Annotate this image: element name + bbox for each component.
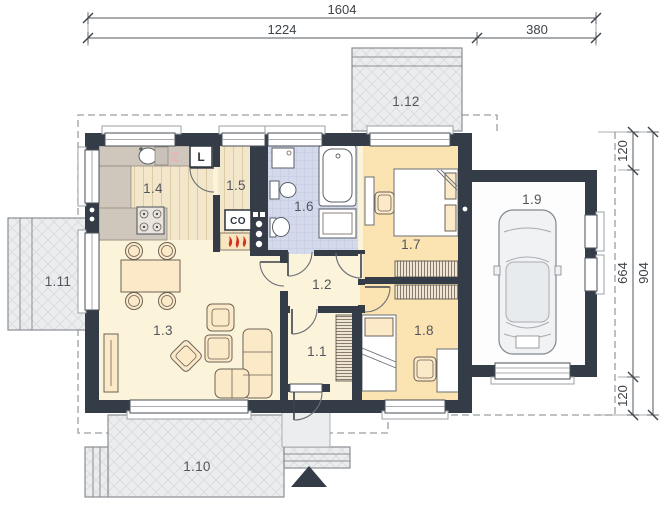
dim-overhang-bottom: 120 xyxy=(615,385,630,407)
fireplace-icon xyxy=(220,233,250,250)
room-label-1-2: 1.2 xyxy=(312,277,332,292)
single-bed xyxy=(362,315,396,391)
garage-door xyxy=(491,363,574,384)
entry-walkway xyxy=(284,447,350,468)
dim-side-depth: 664 xyxy=(615,262,630,284)
wardrobe-1-1 xyxy=(336,315,354,381)
dim-total-depth: 904 xyxy=(636,262,651,284)
fridge-box: L xyxy=(190,146,212,167)
room-label-1-10: 1.10 xyxy=(183,459,210,474)
bath-cabinet xyxy=(272,148,294,168)
vent-dot xyxy=(90,217,95,222)
toilet-icon xyxy=(270,181,296,199)
stove-icon xyxy=(137,207,164,234)
vent-dot xyxy=(90,208,95,213)
boiler-box: CO xyxy=(225,210,251,230)
double-bed xyxy=(394,169,458,236)
dim-overhang-top: 120 xyxy=(615,140,630,162)
coffee-table xyxy=(205,335,232,362)
boiler-label: CO xyxy=(230,216,246,227)
desk-1-7 xyxy=(365,177,374,225)
desk-chair-1-8 xyxy=(414,357,436,381)
room-label-1-1: 1.1 xyxy=(307,344,327,359)
wardrobe-1-7 xyxy=(395,261,463,277)
terrace-back xyxy=(352,48,462,131)
room-label-1-8: 1.8 xyxy=(414,323,434,338)
main-entrance-arrow-icon xyxy=(291,466,327,487)
dishwasher-label: Z xyxy=(171,150,179,164)
room-label-1-5: 1.5 xyxy=(226,178,246,193)
kitchen-sink-icon xyxy=(139,147,157,164)
room-label-1-12: 1.12 xyxy=(392,94,419,109)
dimension-top: 1604 1224 380 xyxy=(83,2,601,46)
wardrobe-1-8 xyxy=(395,285,463,299)
room-label-1-6: 1.6 xyxy=(294,199,314,214)
dim-total-width: 1604 xyxy=(328,2,357,17)
room-label-1-9: 1.9 xyxy=(522,192,542,207)
dim-garage-width: 380 xyxy=(526,22,548,37)
bathtub-icon xyxy=(319,145,356,238)
dimension-right: 120 664 120 904 xyxy=(598,127,659,420)
entry-door xyxy=(290,384,322,392)
armchair xyxy=(207,304,234,331)
dishwasher xyxy=(155,147,168,165)
desk-chair-1-7 xyxy=(375,192,394,214)
car-icon xyxy=(494,210,561,354)
room-label-1-7: 1.7 xyxy=(401,237,421,252)
room-label-1-3: 1.3 xyxy=(153,323,173,338)
floor-plan-drawing: Z L CO 1.1 1.2 1.3 1.4 1.5 1.6 1.7 1.8 1… xyxy=(0,0,660,505)
fridge-label: L xyxy=(197,150,204,164)
floor-plan-page: Z L CO 1.1 1.2 1.3 1.4 1.5 1.6 1.7 1.8 1… xyxy=(0,0,660,505)
room-label-1-4: 1.4 xyxy=(143,181,163,196)
dim-main-width: 1224 xyxy=(268,22,297,37)
room-label-1-11: 1.11 xyxy=(45,274,71,289)
vent-dot xyxy=(463,207,468,212)
washbasin-icon xyxy=(270,218,290,238)
